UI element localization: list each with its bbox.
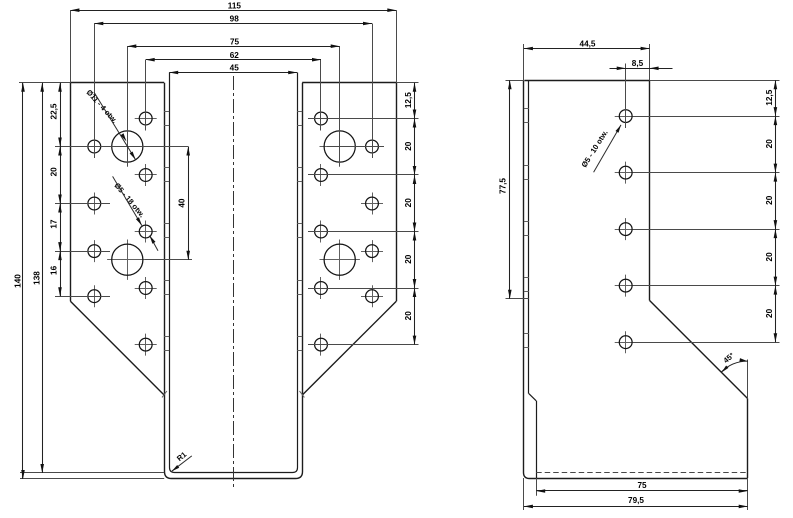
svg-text:17: 17 [50, 219, 59, 229]
svg-text:62: 62 [230, 51, 240, 60]
svg-text:79,5: 79,5 [628, 496, 644, 505]
svg-text:12,5: 12,5 [765, 89, 774, 105]
svg-text:20: 20 [765, 308, 774, 318]
svg-text:20: 20 [765, 139, 774, 149]
svg-text:40: 40 [178, 198, 187, 208]
svg-text:20: 20 [765, 252, 774, 262]
svg-text:20: 20 [404, 311, 413, 321]
svg-text:140: 140 [13, 274, 22, 288]
svg-text:22,5: 22,5 [50, 103, 59, 119]
svg-text:75: 75 [230, 37, 240, 46]
svg-text:45: 45 [230, 64, 240, 73]
svg-text:12,5: 12,5 [404, 92, 413, 108]
svg-text:20: 20 [765, 195, 774, 205]
svg-text:44,5: 44,5 [580, 39, 596, 48]
svg-text:115: 115 [228, 1, 242, 10]
svg-text:98: 98 [230, 15, 240, 24]
svg-text:77,5: 77,5 [499, 178, 508, 194]
svg-text:8,5: 8,5 [632, 59, 644, 68]
svg-text:138: 138 [33, 271, 42, 285]
svg-text:20: 20 [404, 141, 413, 151]
svg-text:20: 20 [404, 198, 413, 208]
svg-text:20: 20 [50, 167, 59, 177]
svg-text:75: 75 [637, 481, 647, 490]
svg-text:16: 16 [50, 265, 59, 275]
svg-text:20: 20 [404, 254, 413, 264]
